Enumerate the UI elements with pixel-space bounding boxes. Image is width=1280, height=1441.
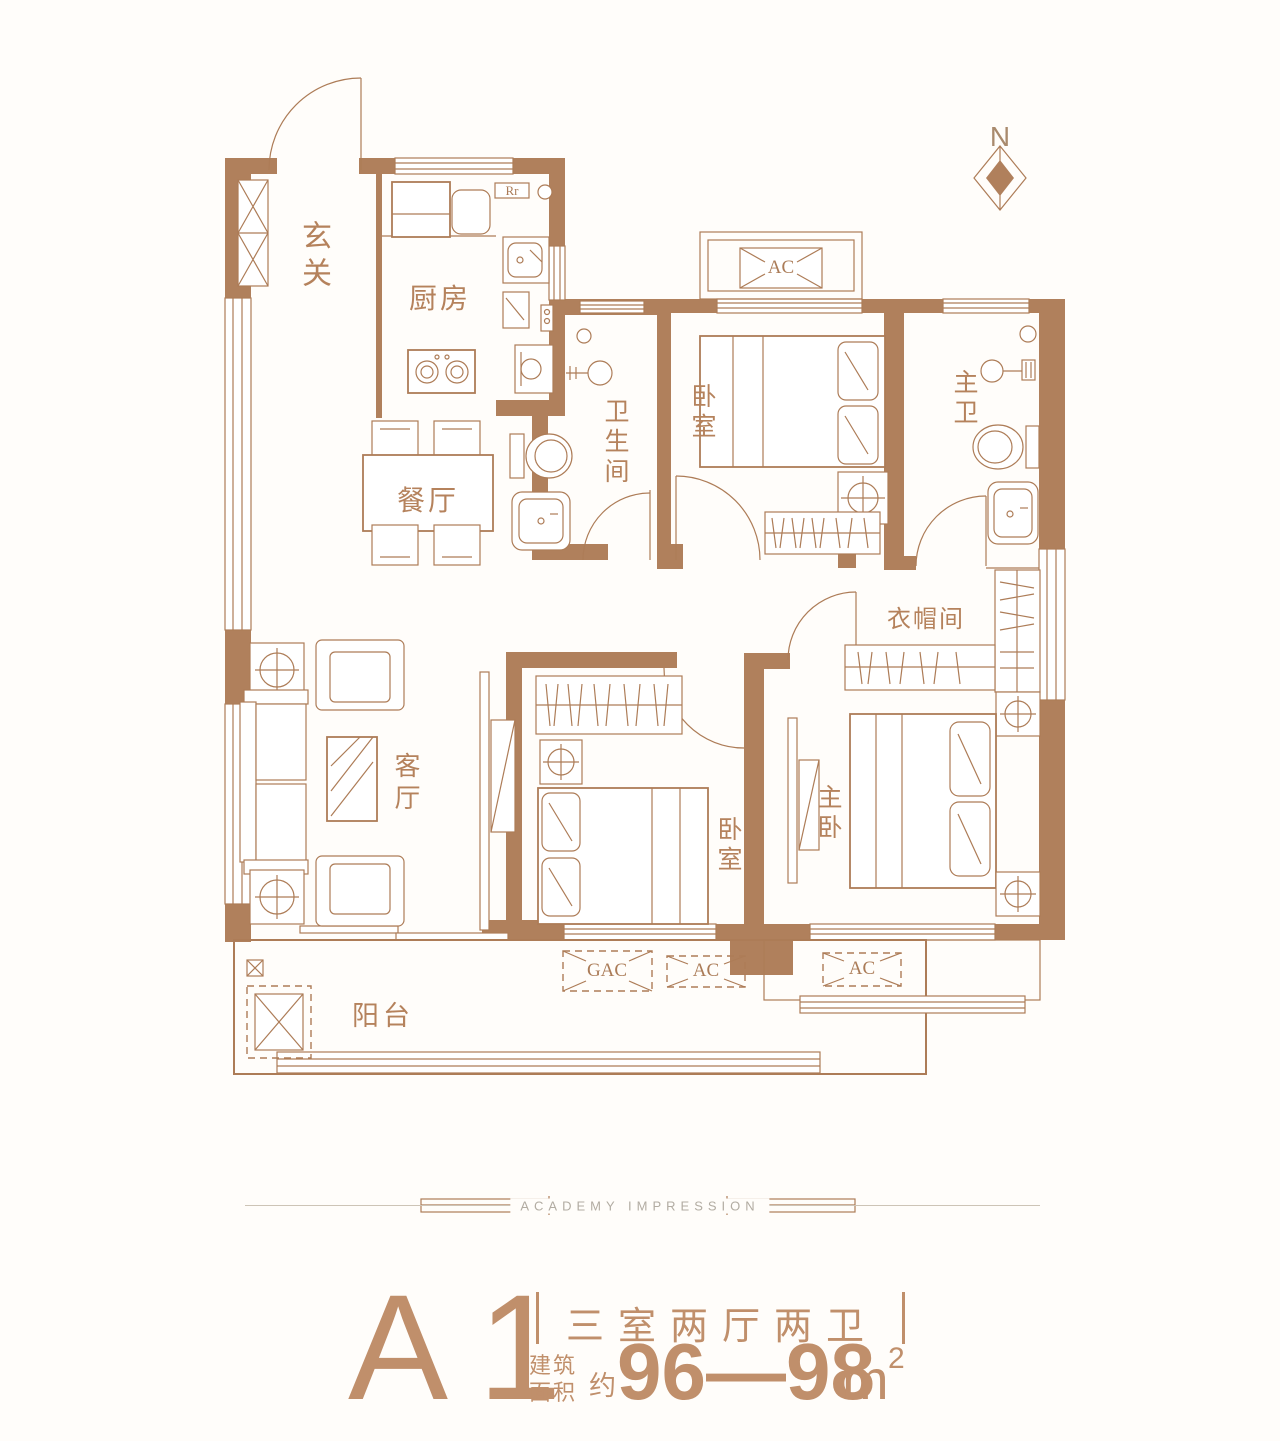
title-bar-right — [902, 1292, 905, 1344]
nightstand — [996, 692, 1040, 736]
kitchen-window — [395, 158, 513, 174]
area-label-line1: 建筑 — [529, 1352, 577, 1379]
dining-chair — [372, 525, 418, 565]
area-label: 建筑 面积 — [529, 1352, 577, 1406]
balcony-window — [277, 1052, 820, 1073]
balcony-sliding-door — [300, 926, 508, 940]
bedroom-top-door — [676, 476, 760, 560]
master-ac-ledge — [764, 940, 1040, 1013]
bedroom-bottom-furniture — [536, 676, 708, 924]
compass-icon — [974, 146, 1026, 210]
pillow — [838, 406, 878, 464]
sofa — [240, 690, 308, 874]
wardrobe — [765, 512, 880, 554]
entrance-door — [269, 78, 361, 170]
divider-label: ACADEMY IMPRESSION — [510, 1199, 769, 1214]
master-bath-door — [916, 496, 986, 566]
floor-drain-icon — [247, 960, 263, 976]
wardrobe — [536, 676, 682, 734]
area-label-line2: 面积 — [529, 1379, 577, 1406]
kitchen-drain-icon — [538, 185, 552, 199]
ac-master-label: AC — [849, 958, 875, 980]
room-label-master-bath: 主卫 — [946, 369, 982, 429]
armchair — [316, 856, 404, 926]
gac-label: GAC — [587, 960, 627, 982]
master-bath-fixtures — [973, 326, 1039, 544]
ac-balcony-label: AC — [693, 960, 719, 982]
sink-icon — [512, 492, 570, 550]
side-table — [250, 870, 304, 924]
bathroom-window — [580, 301, 644, 313]
compass-north-label: N — [990, 121, 1010, 153]
room-label-bathroom: 卫生间 — [597, 398, 633, 488]
shower-icon — [566, 361, 612, 385]
title-bar-left — [536, 1292, 539, 1344]
area-range: 96—98 — [617, 1332, 875, 1412]
coffee-table — [327, 737, 377, 821]
refrigerator — [392, 182, 450, 237]
kitchen-sink — [503, 237, 549, 283]
double-bed — [850, 714, 996, 888]
floor-plan-drawing — [0, 0, 1280, 1441]
ledge-window — [800, 996, 1025, 1013]
double-bed — [538, 788, 708, 924]
bedroom-top-furniture — [700, 336, 888, 554]
control-panel — [541, 305, 553, 331]
shower-icon — [981, 360, 1035, 382]
fridge-mark-label: Rr — [506, 183, 519, 199]
toilet-icon — [973, 425, 1039, 469]
room-label-closet: 衣帽间 — [887, 599, 965, 634]
left-window-upper — [225, 298, 251, 630]
bedroom-top-window — [717, 299, 862, 313]
double-bed — [700, 336, 885, 467]
kitchen-appliance — [452, 190, 490, 234]
kitchen-side-window — [549, 246, 565, 300]
room-label-kitchen: 厨房 — [409, 277, 471, 317]
wardrobe-horizontal — [845, 645, 995, 690]
area-approx: 约 — [589, 1364, 616, 1403]
room-label-balcony: 阳台 — [352, 994, 414, 1033]
oven — [515, 345, 553, 393]
dining-chair — [434, 525, 480, 565]
sink-icon — [988, 482, 1038, 544]
vent-icon — [1020, 326, 1036, 342]
wardrobe-vertical — [995, 570, 1040, 692]
nightstand — [540, 740, 582, 784]
ac-top-label: AC — [768, 257, 794, 279]
side-table — [250, 643, 304, 697]
master-bedroom-window — [810, 924, 995, 940]
floor-plan-page: 玄关 厨房 餐厅 卫生间 卧室 主卫 衣帽间 客厅 卧室 主卧 阳台 Rr AC… — [0, 0, 1280, 1441]
cutting-board — [503, 292, 529, 328]
bedroom-bottom-window — [564, 924, 716, 940]
area-unit: m — [842, 1352, 889, 1408]
armchair — [316, 640, 404, 710]
floor-drain-icon — [577, 329, 591, 343]
room-label-living: 客厅 — [388, 752, 425, 816]
nightstand — [996, 872, 1040, 916]
room-label-entrance: 玄关 — [291, 220, 335, 294]
living-room-furniture — [240, 640, 515, 930]
room-label-bedroom-bottom: 卧室 — [710, 816, 746, 876]
room-label-dining: 餐厅 — [397, 479, 459, 519]
room-label-master-bedroom: 主卧 — [810, 784, 846, 844]
stove-icon — [408, 350, 475, 393]
toilet-icon — [510, 434, 572, 478]
room-label-bedroom-top: 卧室 — [684, 383, 720, 443]
area-exponent: 2 — [888, 1344, 905, 1374]
pillow — [838, 342, 878, 400]
entrance-column — [238, 180, 268, 286]
master-bath-window — [943, 299, 1029, 313]
closet-window — [1039, 549, 1065, 700]
washing-machine — [247, 986, 311, 1058]
